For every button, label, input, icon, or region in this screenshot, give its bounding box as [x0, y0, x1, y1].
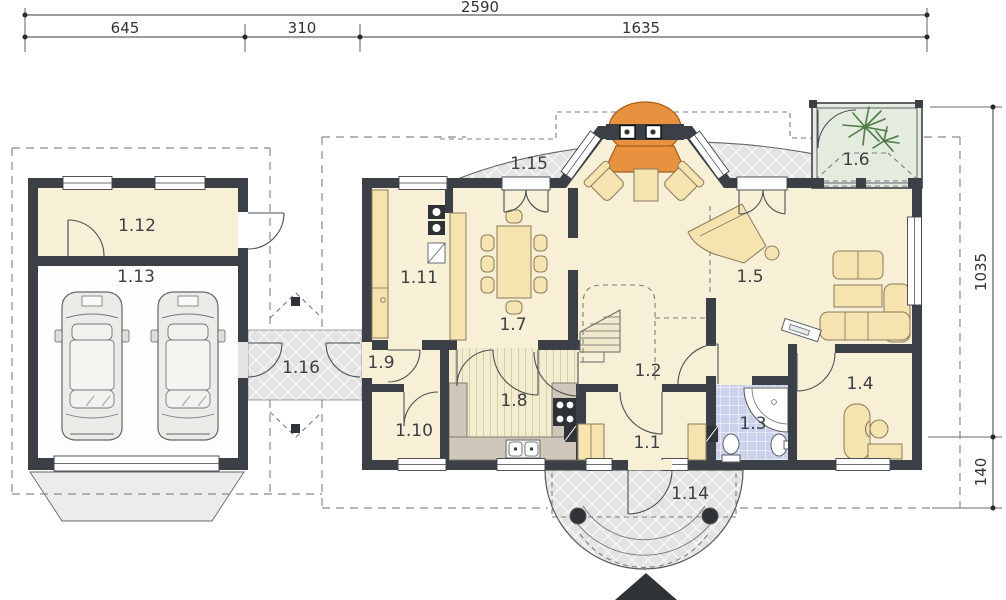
driveway	[30, 472, 244, 521]
window	[586, 459, 612, 471]
room-label-1-14: 1.14	[671, 484, 709, 504]
dim-total-width: 2590	[461, 0, 499, 16]
kitchen-sink-icon	[506, 440, 540, 458]
room-label-1-5: 1.5	[736, 267, 763, 287]
north-arrow-icon	[615, 573, 677, 600]
floor-plan-drawing: 2590 645 310 1635 1035 140	[0, 0, 1006, 600]
room-label-1-10: 1.10	[395, 421, 433, 441]
window	[908, 217, 922, 305]
dim-seg-310: 310	[288, 19, 317, 37]
dimension-right: 1035 140	[928, 105, 1002, 511]
room-label-1-16: 1.16	[282, 358, 320, 378]
room-label-1-1: 1.1	[633, 433, 660, 453]
toilet-icon	[722, 434, 740, 462]
room-label-1-11: 1.11	[400, 268, 438, 288]
conservatory	[809, 100, 923, 188]
room-label-1-8: 1.8	[500, 391, 527, 411]
entrance-porch	[545, 470, 743, 569]
dim-seg-1635: 1635	[622, 19, 660, 37]
room-label-1-9: 1.9	[367, 353, 394, 373]
car-icon	[151, 292, 225, 440]
room-label-1-12: 1.12	[118, 216, 156, 236]
room-label-1-2: 1.2	[634, 361, 661, 381]
fireplace-icon	[604, 102, 686, 172]
room-label-1-6: 1.6	[842, 150, 869, 170]
side-table	[634, 169, 658, 201]
porch-column-icon	[570, 508, 586, 524]
porch-column-icon	[702, 508, 718, 524]
window	[497, 459, 545, 471]
room-label-1-3: 1.3	[739, 414, 766, 434]
floor-plan-page: 2590 645 310 1635 1035 140	[0, 0, 1006, 600]
room-label-1-15: 1.15	[510, 154, 548, 174]
utility-counter	[372, 190, 388, 338]
dim-seg-645: 645	[111, 19, 140, 37]
window	[155, 177, 205, 190]
dimension-top: 2590 645 310 1635	[23, 0, 930, 52]
room-label-1-13: 1.13	[117, 267, 155, 287]
room-label-1-4: 1.4	[846, 374, 873, 394]
tall-cabinet	[450, 213, 466, 340]
car-icon	[55, 292, 129, 440]
garage-building	[28, 177, 284, 472]
window	[836, 459, 890, 471]
stove-icon	[553, 398, 577, 426]
window	[398, 459, 446, 471]
dim-seg-140: 140	[972, 458, 990, 487]
window	[63, 177, 112, 190]
dim-seg-1035: 1035	[972, 253, 990, 291]
window	[399, 177, 447, 190]
room-label-1-7: 1.7	[499, 315, 526, 335]
